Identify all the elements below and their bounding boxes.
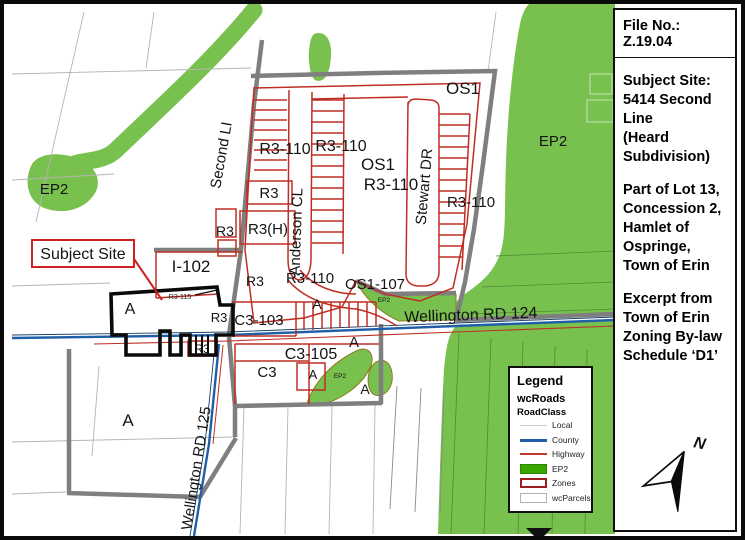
label-a-small: A bbox=[309, 367, 318, 382]
label-r3-near-subject: R3 bbox=[211, 310, 228, 325]
label-wellington-rd-125: Wellington RD 125 bbox=[178, 405, 214, 531]
label-os1-107: OS1-107 bbox=[345, 276, 405, 293]
label-c3-103: C3-103 bbox=[234, 312, 283, 329]
subject-site-text: Subject Site: 5414 Second Line (Heard Su… bbox=[615, 72, 735, 167]
parcels-outline-swatch bbox=[520, 493, 547, 503]
label-a-above-road: A bbox=[312, 296, 322, 312]
label-stewart-dr: Stewart DR bbox=[413, 148, 437, 226]
second-line-road bbox=[229, 40, 262, 335]
legend-title: Legend bbox=[517, 373, 587, 388]
legend-row-label: EP2 bbox=[552, 464, 568, 474]
label-second-line: Second LI bbox=[207, 120, 235, 189]
label-a-west: A bbox=[122, 411, 134, 430]
label-r3-110-a: R3-110 bbox=[259, 141, 310, 158]
info-sidebar: File No.: Z.19.04 Subject Site: 5414 Sec… bbox=[613, 8, 737, 532]
file-number: File No.: Z.19.04 bbox=[615, 10, 735, 58]
label-i-102: I-102 bbox=[172, 257, 211, 276]
label-r3-110-b: R3-110 bbox=[315, 138, 366, 155]
label-anderson-cl: Anderson CL bbox=[286, 188, 306, 276]
label-c3-105: C3-105 bbox=[285, 346, 338, 363]
local-line-swatch bbox=[520, 420, 547, 430]
label-r3-110-east: R3-110 bbox=[447, 194, 495, 211]
label-r3-115: R3-115 bbox=[169, 294, 192, 301]
legend-roadclass: RoadClass bbox=[517, 407, 587, 418]
label-r3-110-south: R3-110 bbox=[286, 270, 334, 287]
north-arrow: N bbox=[637, 430, 723, 516]
label-os1-center: OS1 bbox=[361, 155, 395, 174]
county-line-swatch bbox=[520, 435, 547, 445]
label-ep2-west: EP2 bbox=[40, 181, 68, 198]
ep2-fill-swatch bbox=[520, 464, 547, 474]
label-a-south: A bbox=[360, 381, 370, 397]
label-r3-redbox: R3 bbox=[194, 342, 210, 356]
label-ep2-tiny-2: EP2 bbox=[378, 297, 391, 304]
legend-row-label: Local bbox=[552, 420, 572, 430]
legend-row-label: wcParcels bbox=[552, 493, 591, 503]
label-a-subject: A bbox=[125, 301, 136, 318]
legend-subtitle: wcRoads bbox=[517, 393, 587, 405]
lot-description-text: Part of Lot 13, Concession 2, Hamlet of … bbox=[615, 181, 735, 276]
legend: Legend wcRoads RoadClass Local County Hi… bbox=[508, 366, 593, 513]
legend-row-local: Local bbox=[517, 418, 587, 433]
legend-row-label: County bbox=[552, 435, 579, 445]
label-r3-h: R3(H) bbox=[248, 221, 288, 238]
label-r3-110-center: R3-110 bbox=[364, 175, 419, 194]
legend-row-county: County bbox=[517, 433, 587, 448]
label-r3-south: R3 bbox=[246, 273, 264, 289]
label-r3-row: R3 bbox=[216, 223, 234, 239]
label-c3: C3 bbox=[257, 364, 276, 381]
legend-row-parcels: wcParcels bbox=[517, 491, 587, 506]
legend-row-highway: Highway bbox=[517, 447, 587, 462]
zones-outline-swatch bbox=[520, 478, 547, 488]
label-ep2-east: EP2 bbox=[539, 133, 567, 150]
legend-row-zones: Zones bbox=[517, 476, 587, 491]
legend-row-label: Zones bbox=[552, 478, 576, 488]
label-r3-box: R3 bbox=[259, 185, 278, 202]
highway-line-swatch bbox=[520, 449, 547, 459]
label-ep2-tiny-1: EP2 bbox=[334, 373, 347, 380]
excerpt-text: Excerpt from Town of Erin Zoning By-law … bbox=[615, 290, 735, 366]
north-label: N bbox=[692, 434, 707, 454]
label-os1-top: OS1 bbox=[446, 79, 480, 98]
label-a-mid: A bbox=[349, 334, 359, 351]
zoning-map-page: Subject Site EP2 EP2 Second LI OS1 R3-11… bbox=[0, 0, 745, 540]
legend-row-ep2: EP2 bbox=[517, 462, 587, 477]
legend-row-label: Highway bbox=[552, 449, 585, 459]
callout-label: Subject Site bbox=[40, 246, 125, 263]
